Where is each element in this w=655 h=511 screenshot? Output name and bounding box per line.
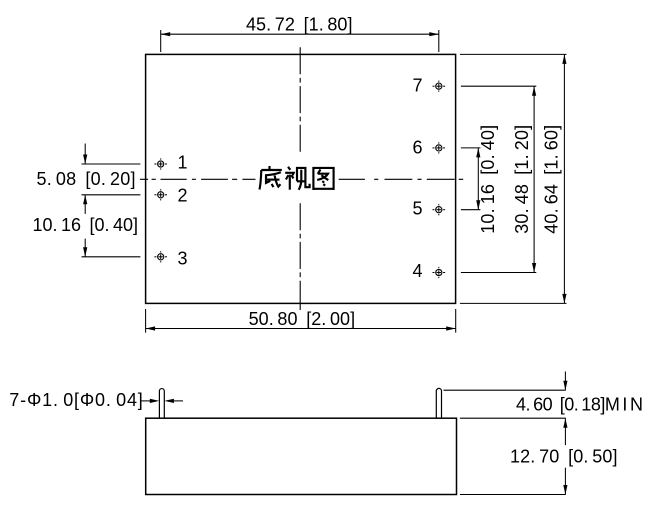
svg-text:10. 16 [0. 40]: 10. 16 [0. 40]	[33, 215, 139, 235]
svg-text:7-Φ1. 0[Φ0. 04]: 7-Φ1. 0[Φ0. 04]	[9, 390, 143, 410]
svg-text:5: 5	[412, 199, 422, 219]
svg-text:2: 2	[178, 186, 188, 206]
svg-text:50. 80 [2. 00]: 50. 80 [2. 00]	[249, 309, 356, 329]
svg-text:1: 1	[178, 153, 188, 173]
svg-text:4: 4	[412, 261, 422, 281]
svg-text:5. 08 [0. 20]: 5. 08 [0. 20]	[37, 169, 136, 189]
svg-text:6: 6	[412, 137, 422, 157]
svg-text:4. 60 [0. 18]M I N: 4. 60 [0. 18]M I N	[516, 394, 643, 414]
svg-text:10. 16 [0. 40]: 10. 16 [0. 40]	[478, 125, 498, 234]
svg-text:3: 3	[178, 249, 188, 269]
svg-text:40. 64 [1. 60]: 40. 64 [1. 60]	[542, 125, 562, 234]
svg-text:7: 7	[412, 76, 422, 96]
svg-text:45. 72 [1. 80]: 45. 72 [1. 80]	[246, 14, 353, 34]
svg-text:30. 48 [1. 20]: 30. 48 [1. 20]	[512, 125, 532, 234]
svg-text:12. 70 [0. 50]: 12. 70 [0. 50]	[510, 447, 618, 467]
